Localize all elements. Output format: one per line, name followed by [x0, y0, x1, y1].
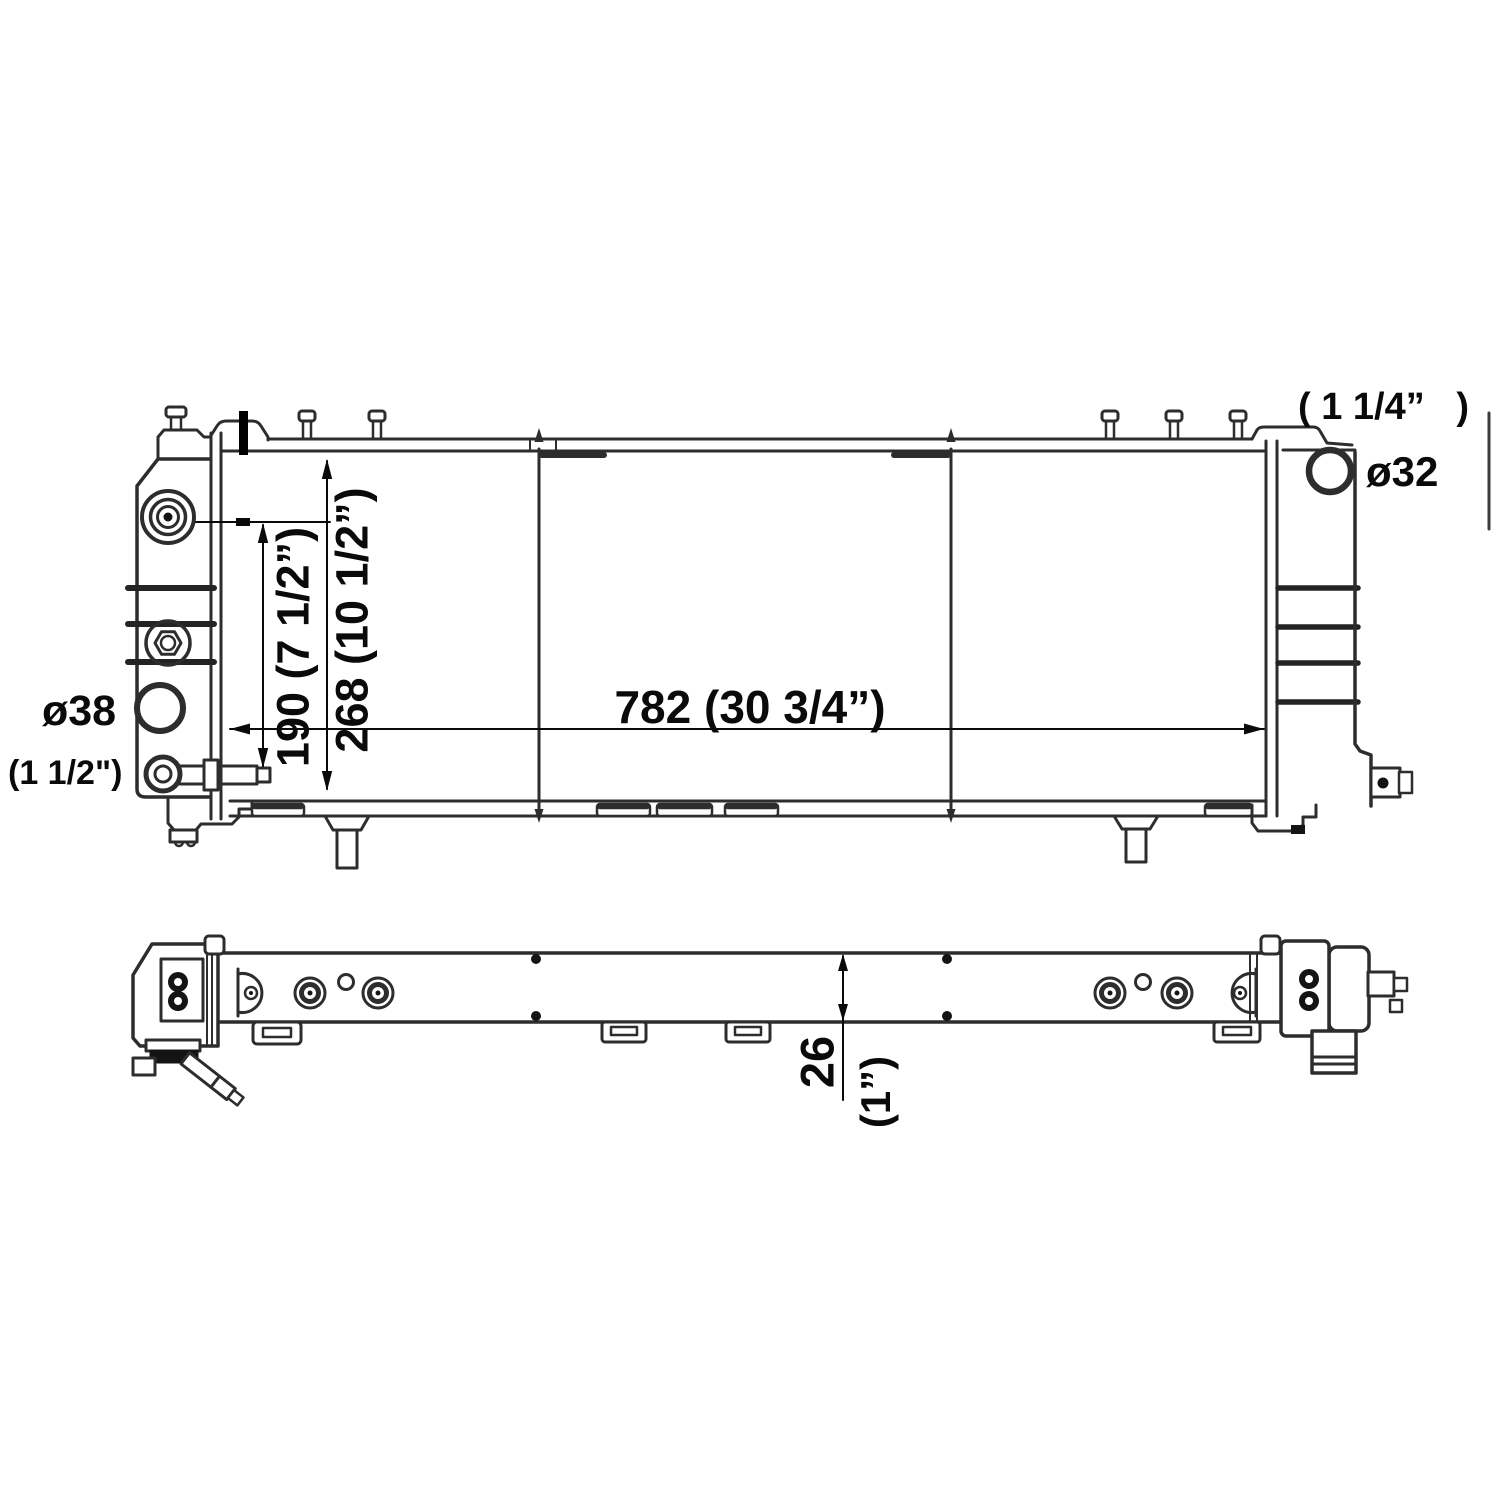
drain-valve	[133, 1040, 245, 1107]
drawing-linework	[0, 0, 1500, 1500]
radiator-technical-drawing: 782 (30 3/4”) 190 (7 1/2”) 268 (10 1/2”)…	[0, 0, 1500, 1500]
right-fastener-holes	[1095, 969, 1256, 1016]
radiator-core	[230, 428, 1266, 868]
drain-plug	[146, 757, 270, 791]
tank-ribs	[128, 588, 214, 662]
bottom-slot-tabs	[253, 1022, 1260, 1044]
left-port-circle	[137, 685, 183, 731]
mounting-peg	[325, 816, 369, 868]
outlet-pipe	[1312, 1031, 1356, 1073]
mounting-stud	[369, 411, 385, 439]
right-port-circle	[1309, 450, 1351, 492]
dim-port-spacing-label: 190 (7 1/2”)	[271, 527, 316, 767]
right-end-cap	[1250, 936, 1407, 1073]
right-tank	[1252, 441, 1412, 834]
right-port-diameter-label: ø32	[1366, 451, 1438, 493]
mounting-stud	[299, 411, 315, 439]
dim-core-height-label: 268 (10 1/2”)	[330, 487, 375, 752]
hex-fitting	[146, 621, 190, 665]
right-port-hose-label: ( 1 1/4” )	[1298, 388, 1469, 426]
mounting-stud	[1166, 411, 1182, 439]
mounting-stud	[1230, 411, 1246, 439]
right-side-tab	[1371, 768, 1412, 797]
tank-ribs	[1278, 588, 1358, 702]
bottom-view	[133, 936, 1407, 1107]
top-header	[222, 439, 1266, 455]
dim-core-width-label: 782 (30 3/4”)	[614, 684, 885, 730]
left-port-hose-label: (1 1/2")	[8, 756, 122, 790]
datum-tick	[239, 411, 248, 455]
core-divider	[947, 428, 956, 823]
mounting-stud	[1102, 411, 1118, 439]
mounting-studs	[299, 411, 1246, 439]
left-end-cap	[133, 936, 224, 1046]
dim-core-thickness-label: 26	[794, 1036, 841, 1088]
right-bottom-bracket	[1252, 805, 1316, 834]
dim-core-thickness-inches-label: (1”)	[855, 1056, 897, 1128]
mounting-peg	[1114, 816, 1158, 862]
bottom-strip-tabs	[252, 804, 1252, 816]
left-fastener-holes	[238, 969, 393, 1016]
projection-dots	[531, 954, 952, 1021]
filler-neck	[142, 491, 194, 543]
left-tank	[128, 433, 270, 846]
core-divider	[535, 428, 544, 823]
left-port-diameter-label: ø38	[42, 690, 116, 733]
